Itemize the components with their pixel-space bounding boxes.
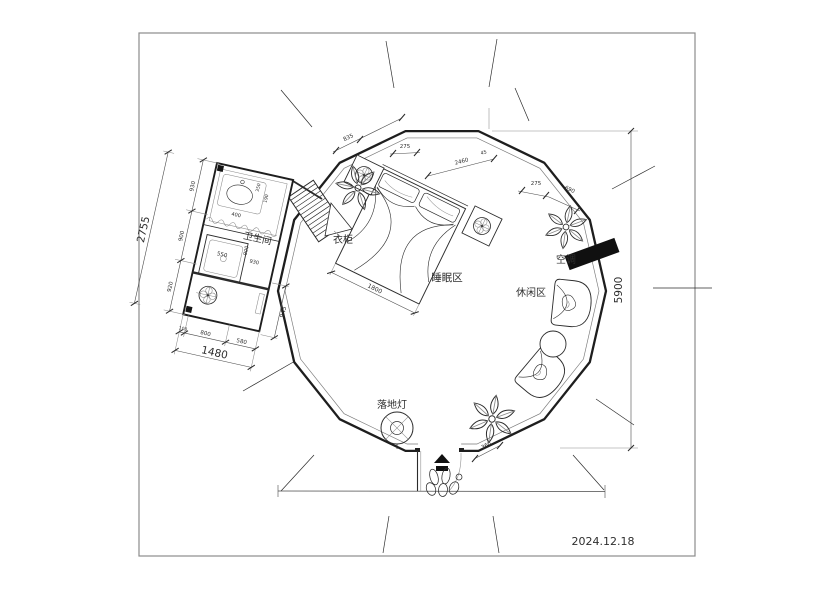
label-sleeping-area: 睡眠区 (431, 271, 463, 284)
floor-plan-drawing: 1800 衣柜 (0, 0, 837, 592)
column-post (185, 306, 192, 313)
side-table (540, 331, 566, 357)
floor-plan-page: 1800 衣柜 (0, 0, 837, 592)
label-floor-lamp: 落地灯 (377, 398, 407, 411)
label-leisure-area: 休闲区 (516, 286, 546, 299)
date-text: 2024.12.18 (572, 535, 635, 548)
column-post (217, 165, 224, 172)
label-wardrobe: 衣柜 (333, 233, 353, 246)
dim-275-right: 275 (531, 181, 542, 187)
dim-5900: 5900 (613, 277, 625, 304)
dim-275-left: 275 (400, 144, 411, 150)
label-air-conditioner: 空调 (556, 253, 576, 266)
